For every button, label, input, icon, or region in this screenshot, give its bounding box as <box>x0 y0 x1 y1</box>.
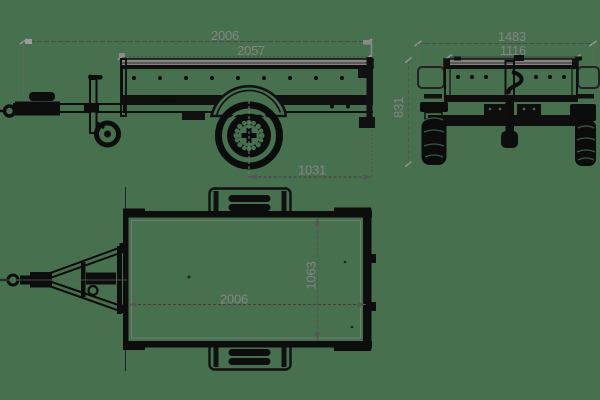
svg-text:2057: 2057 <box>237 43 265 58</box>
svg-text:2006: 2006 <box>211 28 239 43</box>
svg-text:831: 831 <box>391 97 406 118</box>
svg-text:1483: 1483 <box>498 29 526 44</box>
svg-text:2006: 2006 <box>220 292 248 307</box>
svg-text:1063: 1063 <box>304 261 319 289</box>
svg-text:1031: 1031 <box>298 163 326 178</box>
